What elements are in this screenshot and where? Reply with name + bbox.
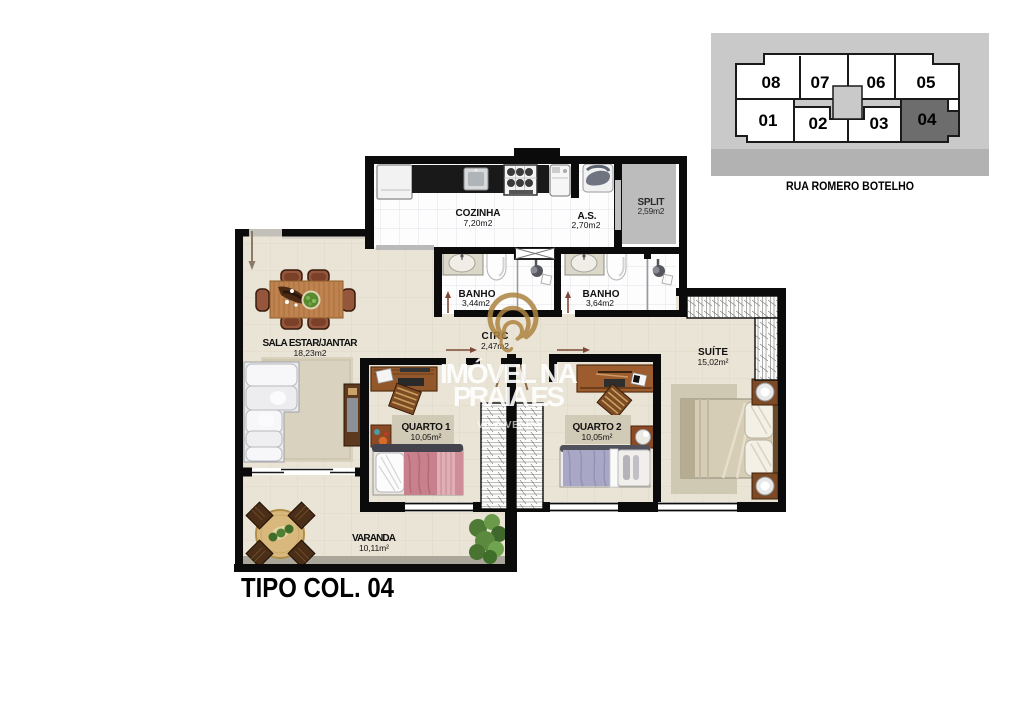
svg-text:07: 07 — [811, 73, 830, 92]
svg-text:2,59m2: 2,59m2 — [638, 206, 665, 216]
svg-text:TIPO COL. 04: TIPO COL. 04 — [241, 572, 394, 603]
svg-text:VILA VELHA: VILA VELHA — [477, 420, 541, 431]
svg-text:01: 01 — [759, 111, 778, 130]
svg-text:10,11m²: 10,11m² — [359, 543, 389, 553]
svg-text:03: 03 — [870, 114, 889, 133]
svg-text:RUA ROMERO BOTELHO: RUA ROMERO BOTELHO — [786, 181, 914, 193]
svg-text:7,20m2: 7,20m2 — [464, 218, 493, 228]
svg-text:05: 05 — [917, 73, 936, 92]
svg-text:3,44m2: 3,44m2 — [462, 298, 490, 308]
svg-text:04: 04 — [918, 110, 937, 129]
svg-text:18,23m2: 18,23m2 — [294, 348, 327, 358]
svg-text:08: 08 — [762, 73, 781, 92]
svg-text:02: 02 — [809, 114, 828, 133]
svg-text:15,02m²: 15,02m² — [698, 357, 729, 367]
svg-text:2,70m2: 2,70m2 — [572, 220, 601, 230]
svg-text:10,05m²: 10,05m² — [411, 432, 442, 442]
svg-text:3,64m2: 3,64m2 — [586, 298, 614, 308]
svg-text:10,05m²: 10,05m² — [582, 432, 613, 442]
svg-text:06: 06 — [867, 73, 886, 92]
svg-text:PRAIA ES: PRAIA ES — [453, 381, 565, 412]
